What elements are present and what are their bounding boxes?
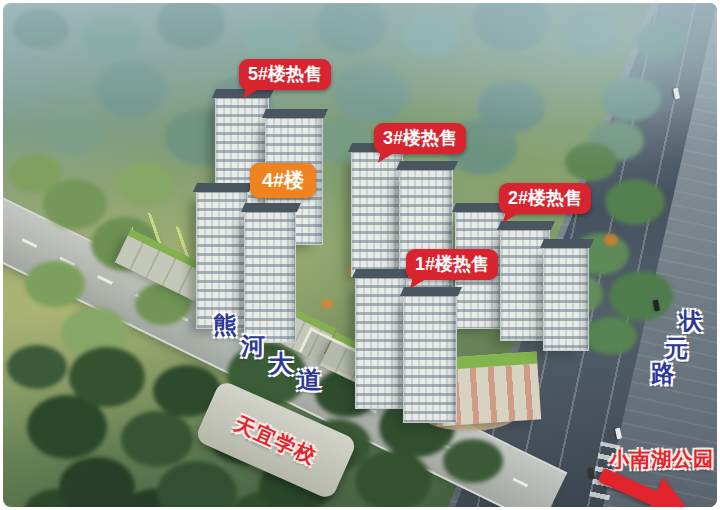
tree-cluster-top	[13, 9, 69, 49]
road-name-zhuangyuan-char: 路	[651, 358, 674, 389]
image-frame: 天宜学校 5#楼热售 3#楼热售 4#楼 2#楼热售 1#楼热售 熊 河 大 道…	[0, 0, 720, 510]
aerial-photo: 天宜学校 5#楼热售 3#楼热售 4#楼 2#楼热售 1#楼热售 熊 河 大 道…	[3, 3, 717, 507]
forest-bottom	[7, 345, 67, 389]
school-label: 天宜学校	[230, 410, 321, 470]
road-name-xionghe-char: 道	[297, 364, 321, 396]
arrow-shaft	[598, 468, 661, 507]
tower-3a	[351, 149, 403, 277]
tree-cluster-mid	[9, 155, 61, 193]
tower-2c	[543, 245, 589, 351]
building-2-hot-sale-label: 2#楼热售	[499, 183, 591, 214]
building-4-label: 4#楼	[250, 163, 316, 198]
autumn-trees	[321, 299, 333, 309]
building-1-hot-sale-label: 1#楼热售	[406, 249, 498, 280]
building-5-hot-sale-label: 5#楼热售	[239, 59, 331, 90]
tower-4a	[196, 189, 248, 329]
tower-4b	[244, 209, 296, 343]
building-3-hot-sale-label: 3#楼热售	[374, 123, 466, 154]
road-name-xionghe-char: 熊	[213, 309, 237, 341]
road-name-xionghe-char: 大	[269, 348, 293, 380]
road-name-xionghe-char: 河	[241, 330, 265, 362]
tower-1b	[403, 293, 457, 423]
